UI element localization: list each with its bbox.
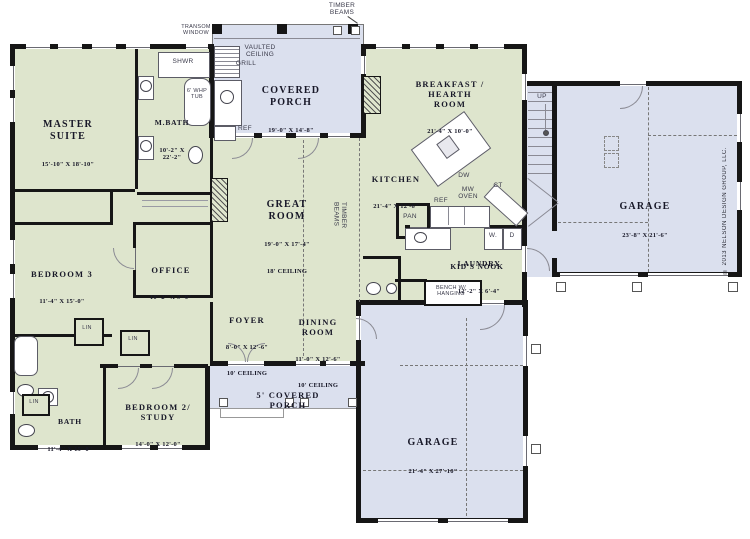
room-name: BEDROOM 2/ STUDY — [113, 402, 203, 422]
room-label-great-room: GREAT ROOM 19'-0" X 17'-4" 18' CEILING — [242, 180, 332, 294]
ct-label: CT — [493, 182, 502, 189]
mw-oven-label: MW OVEN — [458, 186, 478, 201]
room-label-breakfast: BREAKFAST / HEARTH ROOM 21'-4" X 10'-0" — [395, 60, 505, 154]
garage-door — [560, 273, 638, 277]
window — [444, 44, 470, 49]
room-name: GARAGE — [590, 201, 700, 213]
mechanical-unit — [604, 153, 619, 168]
porch-step-line — [214, 38, 360, 39]
grill-label: GRILL — [236, 60, 256, 67]
wall — [398, 259, 401, 302]
window — [522, 74, 527, 100]
room-name: BATH — [25, 418, 115, 427]
porch-sink — [220, 90, 234, 104]
room-label-bedroom2: BEDROOM 2/ STUDY 14'-0" X 12'-0" — [113, 383, 203, 467]
garage-bay-line — [400, 365, 523, 366]
room-dims: 21'-4" X 12'-6" — [356, 203, 436, 211]
washer-label: W. — [489, 232, 497, 239]
room-dims: 21'-4" X 10'-0" — [395, 128, 505, 136]
wall — [15, 189, 135, 192]
whp-tub-label: 6' WHP TUB — [187, 88, 207, 101]
room-label-bedroom3: BEDROOM 3 11'-4" X 15'-0" — [12, 250, 112, 324]
garage-door — [448, 519, 508, 523]
window — [523, 436, 528, 466]
wall — [15, 222, 112, 225]
lin-label: LIN — [82, 325, 91, 331]
fireplace — [211, 178, 228, 222]
transom-window-label: TRANSOM WINDOW — [181, 24, 211, 37]
room-dims: 19'-0" X 17'-4" — [242, 241, 332, 249]
room-label-garage-side: GARAGE 23'-8" X 21'-6" — [590, 182, 700, 258]
window — [376, 44, 402, 49]
garage-door — [648, 273, 728, 277]
window — [10, 392, 15, 414]
toilet — [366, 282, 381, 295]
room-dims: 14'-0" X 12'-0" — [113, 441, 203, 449]
wall — [737, 81, 742, 277]
sink — [386, 283, 397, 294]
room-label-office: OFFICE 10'-2" X 9'-0" — [131, 246, 211, 320]
counter-divider — [464, 207, 465, 225]
transom-window — [186, 44, 208, 49]
wall — [523, 300, 528, 523]
room-dims: 15'-10" X 18'-10" — [20, 161, 116, 169]
room-label-master-suite: MASTER SUITE 15'-10" X 18'-10" — [20, 100, 116, 188]
timber-beams-label: TIMBER BEAMS — [329, 2, 355, 17]
garage-post — [531, 444, 541, 454]
room-name: OFFICE — [131, 265, 211, 275]
stair-tread — [528, 101, 552, 102]
window — [126, 44, 150, 49]
window — [10, 66, 15, 90]
kitchen-counter — [430, 206, 490, 228]
wall — [552, 258, 557, 274]
room-dims: 11'-0" X 12'-6" — [278, 356, 358, 364]
garage-post — [556, 282, 566, 292]
window — [737, 114, 742, 142]
room-label-garage-rear: GARAGE 21'-4" X 27'-10" — [378, 418, 488, 494]
up-arrow-line — [545, 104, 546, 130]
lin-label: LIN — [29, 399, 38, 405]
room-name: BEDROOM 3 — [12, 269, 112, 279]
stair-tread — [528, 146, 552, 147]
stair-tread — [528, 137, 552, 138]
window — [410, 44, 436, 49]
room-label-kitchen: KITCHEN 21'-4" X 12'-6" — [356, 155, 436, 229]
room-name: COVERED PORCH — [246, 85, 336, 109]
window — [58, 44, 82, 49]
wall — [363, 256, 401, 259]
floor-plan: MASTER SUITE 15'-10" X 18'-10" M.BATH 10… — [0, 0, 750, 539]
shwr-label: SHWR — [172, 58, 193, 65]
wall — [110, 192, 113, 225]
ref-label: REF — [238, 125, 252, 132]
room-name: DINING ROOM — [278, 317, 358, 337]
window — [361, 56, 366, 74]
kids-nook-label: KID'S NOOK — [450, 263, 503, 272]
room-dims: 10'-2" X 22'-2" — [142, 147, 202, 162]
room-name: MASTER SUITE — [20, 119, 116, 143]
window — [10, 98, 15, 122]
room-dims: 10'-2" X 9'-0" — [131, 294, 211, 302]
room-dims: 23'-8" X 21'-6" — [590, 232, 700, 240]
pan-label: PAN — [403, 213, 417, 220]
window — [478, 44, 504, 49]
window — [737, 182, 742, 210]
wall — [135, 49, 138, 189]
room-label-porch5: 5' COVERED PORCH — [233, 371, 343, 429]
room-name: BREAKFAST / HEARTH ROOM — [395, 79, 505, 109]
room-name: FOYER — [212, 315, 282, 325]
room-label-m-bath: M.BATH 10'-2" X 22'-2" — [142, 100, 202, 181]
dryer-label: D — [510, 232, 515, 239]
garage-post — [531, 344, 541, 354]
porch-post — [219, 398, 228, 407]
porch-fridge — [214, 126, 236, 141]
lin-label: LIN — [128, 336, 137, 342]
closet-rod — [142, 206, 208, 207]
timber-beam-post — [351, 26, 360, 35]
timber-beams-pointer — [347, 16, 357, 24]
room-label-covered-porch: COVERED PORCH 19'-0" X 14'-8" — [246, 66, 336, 154]
room-dims: 11'-4" X 15'-0" — [25, 446, 115, 454]
porch-post — [277, 24, 287, 34]
room-name: GREAT ROOM — [242, 199, 332, 223]
window — [26, 44, 50, 49]
room-name: GARAGE — [378, 437, 488, 449]
up-arrow-dot — [543, 130, 549, 136]
garage-post — [728, 282, 738, 292]
room-name: M.BATH — [142, 119, 202, 128]
up-label: UP — [537, 93, 547, 100]
wall — [552, 86, 557, 231]
vaulted-ceiling-label: VAULTED CEILING — [244, 44, 275, 59]
copyright-text: © 2013 NELSON DESIGN GROUP, LLC. — [722, 124, 728, 274]
room-dims: 21'-4" X 27'-10" — [378, 468, 488, 476]
stair-tread — [528, 173, 552, 174]
linen-closet — [120, 330, 150, 356]
room-dims: 11'-4" X 15'-0" — [12, 298, 112, 306]
porch-post — [212, 24, 222, 34]
stair-tread — [528, 164, 552, 165]
counter-divider — [448, 207, 449, 225]
ref-kitchen-label: REF — [434, 197, 448, 204]
mechanical-unit — [604, 136, 619, 151]
timber-beams-vertical-label: TIMBER BEAMS — [332, 202, 347, 262]
window — [523, 336, 528, 366]
tub — [14, 336, 38, 376]
bench-label: BENCH W/ HANGING — [436, 285, 466, 298]
room-dims: 8'-0" X 12'-6" — [212, 344, 282, 352]
room-label-bath: BATH 11'-4" X 15'-0" — [25, 399, 115, 472]
stair-tread — [528, 119, 552, 120]
room-label-laundry: LAUNDRY 12'-2" X 6'-4" — [439, 241, 519, 314]
stair-tread — [528, 155, 552, 156]
closet-rod — [142, 200, 208, 201]
sink — [140, 80, 152, 92]
room-ceiling: 18' CEILING — [242, 268, 332, 276]
garage-door — [378, 519, 438, 523]
room-name: 5' COVERED PORCH — [233, 390, 343, 410]
timber-beam-post — [333, 26, 342, 35]
stair-tread — [528, 110, 552, 111]
wall — [205, 366, 210, 450]
dw-label: DW — [458, 172, 469, 179]
fireplace — [363, 76, 381, 114]
wall — [137, 192, 212, 195]
window — [92, 44, 116, 49]
room-name: KITCHEN — [356, 174, 436, 184]
laundry-sink — [414, 232, 427, 243]
room-dims: 19'-0" X 14'-8" — [246, 127, 336, 135]
stair-tread — [528, 128, 552, 129]
garage-post — [632, 282, 642, 292]
